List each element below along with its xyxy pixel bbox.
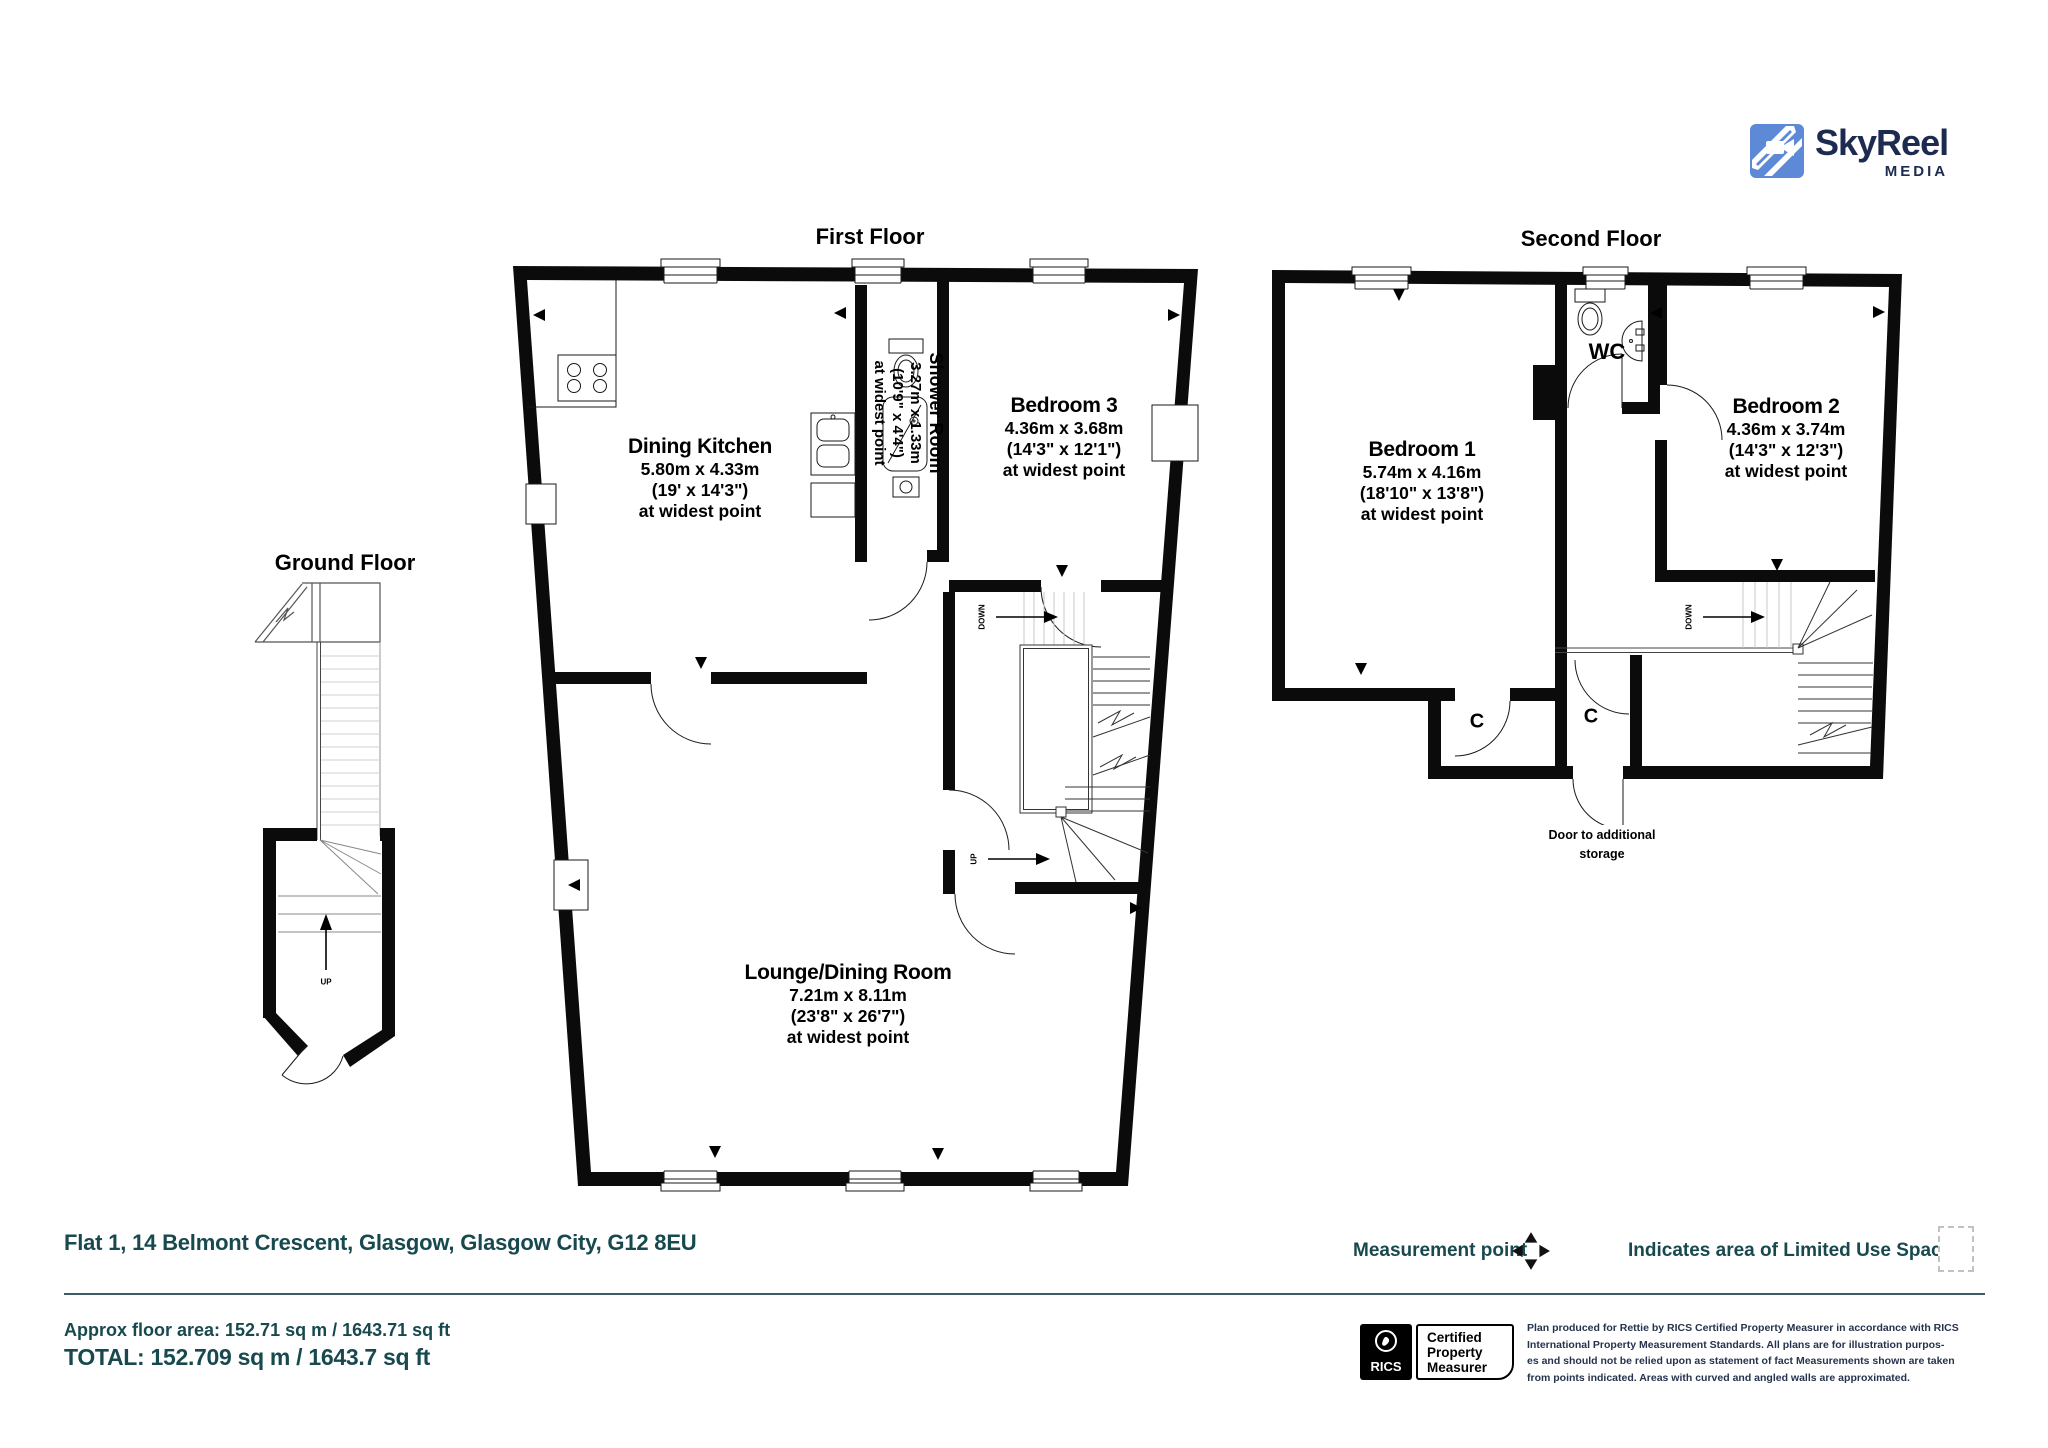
disclaimer-line1: Plan produced for Rettie by RICS Certifi… [1527, 1320, 2007, 1337]
storage-note-line2: storage [1549, 845, 1656, 864]
closet-label-2: C [1584, 706, 1598, 729]
gf-open-stair [255, 583, 380, 642]
skyreel-logo: SkyReel MEDIA [1750, 124, 1948, 180]
room-note: at widest point [628, 501, 772, 522]
certified-measurer-badge: Certified Property Measurer [1416, 1324, 1514, 1380]
room-note: at widest point [1725, 461, 1848, 482]
gf-winders [278, 840, 381, 932]
room-dims-imperial: (19' x 14'3") [628, 480, 772, 501]
certified-line3: Measurer [1427, 1360, 1512, 1375]
disclaimer-line4: from points indicated. Areas with curved… [1527, 1370, 2007, 1387]
window-icon [1583, 267, 1628, 291]
room-label-dining-kitchen: Dining Kitchen 5.80m x 4.33m (19' x 14'3… [628, 434, 772, 522]
rics-logo: RICS [1360, 1324, 1412, 1380]
first-floor-title: First Floor [816, 224, 925, 250]
measurement-point-label: Measurement point [1353, 1240, 1527, 1262]
floorplan-page: { "logo": {"name": "SkyReel", "sub": "ME… [0, 0, 2048, 1448]
second-floor-plan [1265, 265, 1910, 825]
storage-note: Door to additional storage [1549, 826, 1656, 865]
room-dims-metric: 5.74m x 4.16m [1360, 462, 1484, 483]
second-floor-title: Second Floor [1521, 226, 1662, 252]
room-dims-imperial: (18'10" x 13'8") [1360, 483, 1484, 504]
ground-floor-title: Ground Floor [275, 550, 416, 576]
gf-up-arrow [320, 914, 332, 970]
room-note: at widest point [870, 352, 888, 473]
wc-label: WC [1589, 339, 1626, 365]
ff-down-label: DOWN [978, 604, 987, 629]
room-note: at widest point [1360, 504, 1484, 525]
room-dims-metric: 4.36m x 3.68m [1003, 418, 1126, 439]
rics-lion-icon [1371, 1328, 1401, 1358]
window-icon [1030, 1168, 1082, 1194]
window-icon [1030, 259, 1088, 285]
room-dims-metric: 7.21m x 8.11m [745, 985, 952, 1006]
room-dims-imperial: (10'9" x 4'4") [888, 352, 906, 473]
measurement-point-icon [1510, 1230, 1552, 1272]
room-label-shower-room: Shower Room 3.27m x 1.33m (10'9" x 4'4")… [870, 352, 946, 473]
sf-down-label: DOWN [1685, 604, 1694, 629]
window-icon [852, 259, 904, 285]
room-dims-imperial: (14'3" x 12'3") [1725, 440, 1848, 461]
certified-line2: Property [1427, 1345, 1512, 1360]
certified-line1: Certified [1427, 1330, 1512, 1345]
window-icon [1747, 267, 1806, 291]
closet-label-1: C [1470, 711, 1484, 734]
logo-subtitle: MEDIA [1815, 163, 1948, 180]
kitchen-recess [526, 484, 556, 524]
room-name: Bedroom 3 [1003, 393, 1126, 418]
footer-divider [64, 1293, 1985, 1295]
gf-stair-run [317, 642, 380, 840]
room-name: Bedroom 2 [1725, 394, 1848, 419]
gf-up-label: UP [320, 978, 331, 987]
room-dims-metric: 3.27m x 1.33m [906, 352, 924, 473]
gf-walls [263, 828, 395, 1067]
bedroom3-bay [1152, 405, 1198, 461]
rics-wordmark: RICS [1364, 1358, 1408, 1376]
room-dims-imperial: (23'8" x 26'7") [745, 1006, 952, 1027]
approx-floor-area: Approx floor area: 152.71 sq m / 1643.71… [64, 1320, 450, 1341]
room-label-bedroom3: Bedroom 3 4.36m x 3.68m (14'3" x 12'1") … [1003, 393, 1126, 481]
room-note: at widest point [1003, 460, 1126, 481]
window-icon [1352, 267, 1411, 291]
disclaimer-line3: es and should not be relied upon as stat… [1527, 1353, 2007, 1370]
stair-well [1020, 645, 1092, 813]
room-dims-metric: 5.80m x 4.33m [628, 459, 772, 480]
room-label-bedroom1: Bedroom 1 5.74m x 4.16m (18'10" x 13'8")… [1360, 437, 1484, 525]
limited-use-swatch [1938, 1226, 1974, 1272]
ff-up-label: UP [970, 853, 979, 864]
sf-storage-door-gap [1573, 764, 1623, 781]
newel-post [1793, 644, 1803, 654]
room-name: Lounge/Dining Room [745, 960, 952, 985]
skyreel-logo-text: SkyReel MEDIA [1815, 124, 1948, 180]
storage-note-line1: Door to additional [1549, 826, 1656, 845]
room-label-lounge: Lounge/Dining Room 7.21m x 8.11m (23'8" … [745, 960, 952, 1048]
gf-entry-door-arc [282, 1045, 343, 1084]
room-name: Dining Kitchen [628, 434, 772, 459]
limited-use-label: Indicates area of Limited Use Space [1628, 1240, 1952, 1262]
room-name: Bedroom 1 [1360, 437, 1484, 462]
skyreel-logo-icon [1750, 124, 1804, 178]
room-dims-metric: 4.36m x 3.74m [1725, 419, 1848, 440]
newel-post [1056, 807, 1066, 817]
disclaimer-text: Plan produced for Rettie by RICS Certifi… [1527, 1320, 2007, 1386]
room-note: at widest point [745, 1027, 952, 1048]
window-icon [846, 1168, 904, 1194]
disclaimer-line2: International Property Measurement Stand… [1527, 1337, 2007, 1354]
room-label-bedroom2: Bedroom 2 4.36m x 3.74m (14'3" x 12'3") … [1725, 394, 1848, 482]
window-icon [661, 1168, 720, 1194]
ground-floor-plan [250, 578, 410, 1098]
property-address: Flat 1, 14 Belmont Crescent, Glasgow, Gl… [64, 1230, 697, 1256]
rics-text: RICS [1370, 1359, 1401, 1374]
window-icon [661, 259, 720, 285]
total-floor-area: TOTAL: 152.709 sq m / 1643.7 sq ft [64, 1344, 430, 1371]
logo-name: SkyReel [1815, 124, 1948, 162]
storage-door-arc [1573, 779, 1623, 825]
room-name: Shower Room [924, 352, 946, 473]
room-dims-imperial: (14'3" x 12'1") [1003, 439, 1126, 460]
